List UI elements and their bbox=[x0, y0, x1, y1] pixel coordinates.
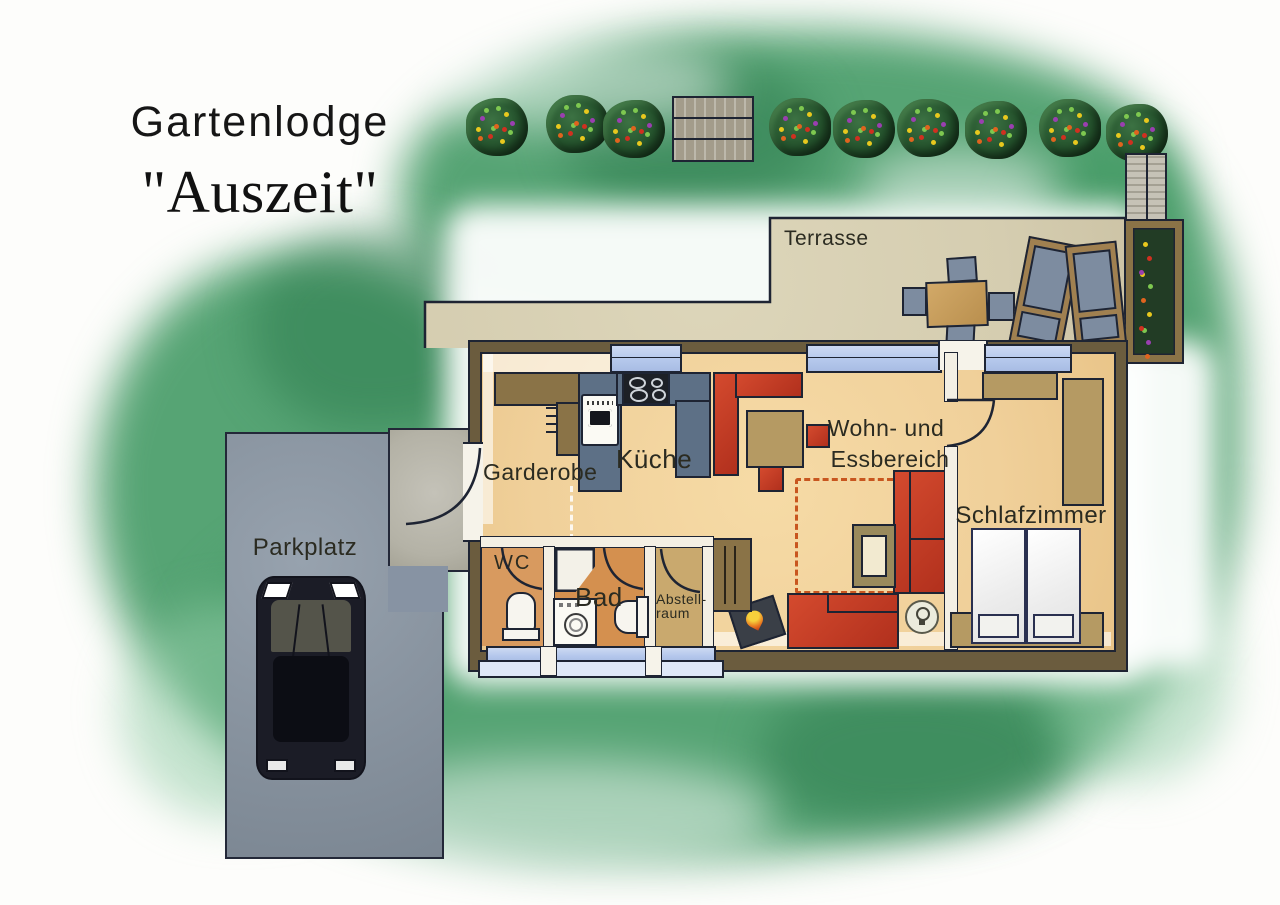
kitchen-window-icon bbox=[610, 344, 682, 373]
toilet-tank bbox=[636, 596, 649, 638]
terrace-chair-icon bbox=[946, 256, 978, 283]
bed-mattress bbox=[971, 528, 1026, 644]
flower-bush-icon bbox=[1039, 99, 1101, 157]
label-abstellraum-line2: raum bbox=[656, 606, 707, 620]
flower-bush-icon bbox=[833, 100, 895, 158]
sofa bbox=[787, 593, 899, 649]
flower-bush-icon bbox=[546, 95, 608, 153]
corner-bench bbox=[735, 372, 803, 398]
car-icon bbox=[256, 576, 366, 780]
lamp-icon bbox=[905, 600, 939, 634]
bathroom-wall-top bbox=[480, 536, 714, 548]
label-schlafzimmer: Schlafzimmer bbox=[950, 502, 1112, 530]
sofa bbox=[893, 470, 949, 594]
floor-plan-canvas: Gartenlodge "Auszeit" Terrasse Garderobe… bbox=[0, 0, 1280, 905]
terrace-chair-icon bbox=[902, 287, 927, 316]
label-wohnbereich-line2: Essbereich bbox=[826, 446, 954, 473]
living-window-icon bbox=[806, 344, 942, 373]
path-stone bbox=[388, 566, 448, 612]
flower-bush-icon bbox=[965, 101, 1027, 159]
bedroom-wall bbox=[944, 352, 958, 402]
toilet-base bbox=[502, 628, 540, 641]
privacy-screen-icon bbox=[1125, 153, 1167, 223]
coffee-table bbox=[852, 524, 896, 588]
bedroom-window-icon bbox=[984, 344, 1072, 373]
stool bbox=[758, 466, 784, 492]
window-post bbox=[645, 646, 662, 676]
closet bbox=[1062, 378, 1104, 506]
sun-lounger-icon bbox=[1065, 241, 1128, 352]
floor-highlight bbox=[483, 354, 493, 524]
label-abstellraum-line1: Abstell- bbox=[656, 592, 707, 606]
subtitle: "Auszeit" bbox=[115, 158, 405, 227]
label-terrasse: Terrasse bbox=[784, 227, 869, 251]
title: Gartenlodge bbox=[115, 98, 405, 147]
oven-icon bbox=[581, 394, 619, 446]
terrace-chair-icon bbox=[988, 292, 1015, 321]
wardrobe bbox=[494, 372, 582, 406]
flower-bush-icon bbox=[466, 98, 528, 156]
flower-bush-icon bbox=[897, 99, 959, 157]
window-post bbox=[540, 646, 557, 676]
flower-bush-icon bbox=[603, 100, 665, 158]
label-wc: WC bbox=[494, 552, 531, 575]
flower-bush-icon bbox=[769, 98, 831, 156]
terrace-table-icon bbox=[925, 280, 989, 328]
wooden-pallet-icon bbox=[672, 96, 754, 162]
window-sill bbox=[478, 660, 724, 678]
entrance-door-opening bbox=[463, 442, 483, 542]
toilet-icon bbox=[506, 592, 536, 632]
label-parkplatz: Parkplatz bbox=[250, 534, 360, 562]
bed-mattress bbox=[1026, 528, 1081, 644]
label-abstellraum: Abstell- raum bbox=[656, 592, 707, 620]
label-kueche: Küche bbox=[616, 444, 692, 475]
flower-planter-icon bbox=[1126, 221, 1182, 362]
stove-icon bbox=[622, 372, 670, 405]
label-garderobe: Garderobe bbox=[483, 459, 597, 486]
floor-transition-dashed bbox=[570, 486, 573, 540]
label-wohnbereich-line1: Wohn- und bbox=[822, 415, 950, 442]
shelf bbox=[712, 538, 752, 612]
dresser bbox=[982, 372, 1058, 400]
label-bad: Bad bbox=[575, 582, 623, 613]
watercolor-green-dark bbox=[760, 680, 1060, 830]
dining-table bbox=[746, 410, 804, 468]
